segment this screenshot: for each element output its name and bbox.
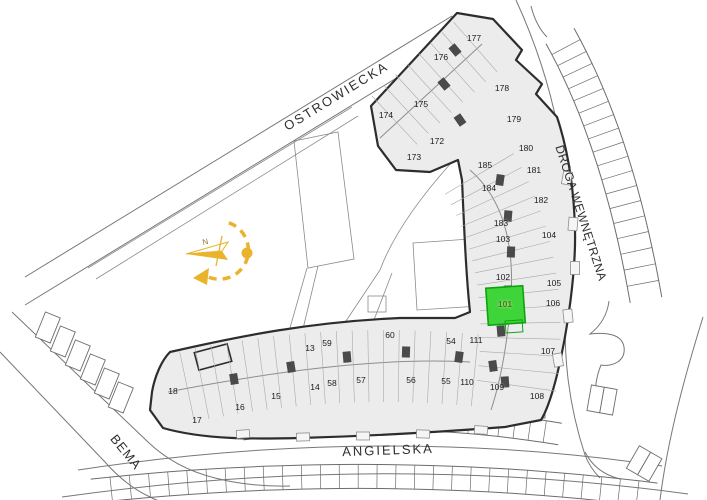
unit-label-176[interactable]: 176 [434, 53, 448, 62]
compass-north-label: N [202, 237, 210, 247]
unit-label-182[interactable]: 182 [534, 196, 548, 205]
unit-label-172[interactable]: 172 [430, 137, 444, 146]
bema-parking-stalls [35, 312, 133, 413]
unit-label-18[interactable]: 18 [168, 387, 177, 396]
compass-sun-indicator: N [186, 223, 253, 285]
unit-label-180[interactable]: 180 [519, 144, 533, 153]
unit-label-58[interactable]: 58 [327, 379, 336, 388]
unit-label-179[interactable]: 179 [507, 115, 521, 124]
unit-label-103[interactable]: 103 [496, 235, 510, 244]
unit-label-59[interactable]: 59 [322, 339, 331, 348]
unit-label-105[interactable]: 105 [547, 279, 561, 288]
unit-label-56[interactable]: 56 [406, 376, 415, 385]
unit-label-55[interactable]: 55 [441, 377, 450, 386]
site-plan-map: N [0, 0, 707, 500]
unit-label-57[interactable]: 57 [356, 376, 365, 385]
site-plan: N 17417517617717217317817918018518118418… [0, 0, 707, 500]
unit-label-175[interactable]: 175 [414, 100, 428, 109]
southeast-parking-stalls [587, 385, 662, 481]
unit-label-109[interactable]: 109 [490, 383, 504, 392]
unit-label-173[interactable]: 173 [407, 153, 421, 162]
unit-label-54[interactable]: 54 [446, 337, 455, 346]
unit-label-174[interactable]: 174 [379, 111, 393, 120]
unit-label-111[interactable]: 111 [470, 336, 483, 345]
unit-label-17[interactable]: 17 [192, 416, 201, 425]
unit-label-108[interactable]: 108 [530, 392, 544, 401]
unit-label-177[interactable]: 177 [467, 34, 481, 43]
unit-label-183[interactable]: 183 [494, 219, 508, 228]
unit-label-14[interactable]: 14 [310, 383, 319, 392]
unit-label-106[interactable]: 106 [546, 299, 560, 308]
unit-label-110[interactable]: 110 [460, 378, 474, 387]
unit-label-60[interactable]: 60 [385, 331, 394, 340]
unit-label-16[interactable]: 16 [235, 403, 244, 412]
unit-label-185[interactable]: 185 [478, 161, 492, 170]
unit-label-104[interactable]: 104 [542, 231, 556, 240]
unit-label-101[interactable]: 101 [498, 300, 512, 309]
unit-label-181[interactable]: 181 [527, 166, 541, 175]
unit-label-15[interactable]: 15 [271, 392, 280, 401]
unit-label-184[interactable]: 184 [482, 184, 496, 193]
unit-label-107[interactable]: 107 [541, 347, 555, 356]
unit-label-178[interactable]: 178 [495, 84, 509, 93]
unit-label-102[interactable]: 102 [496, 273, 510, 282]
sun-path-arrowhead [193, 268, 209, 285]
unit-label-13[interactable]: 13 [305, 344, 314, 353]
